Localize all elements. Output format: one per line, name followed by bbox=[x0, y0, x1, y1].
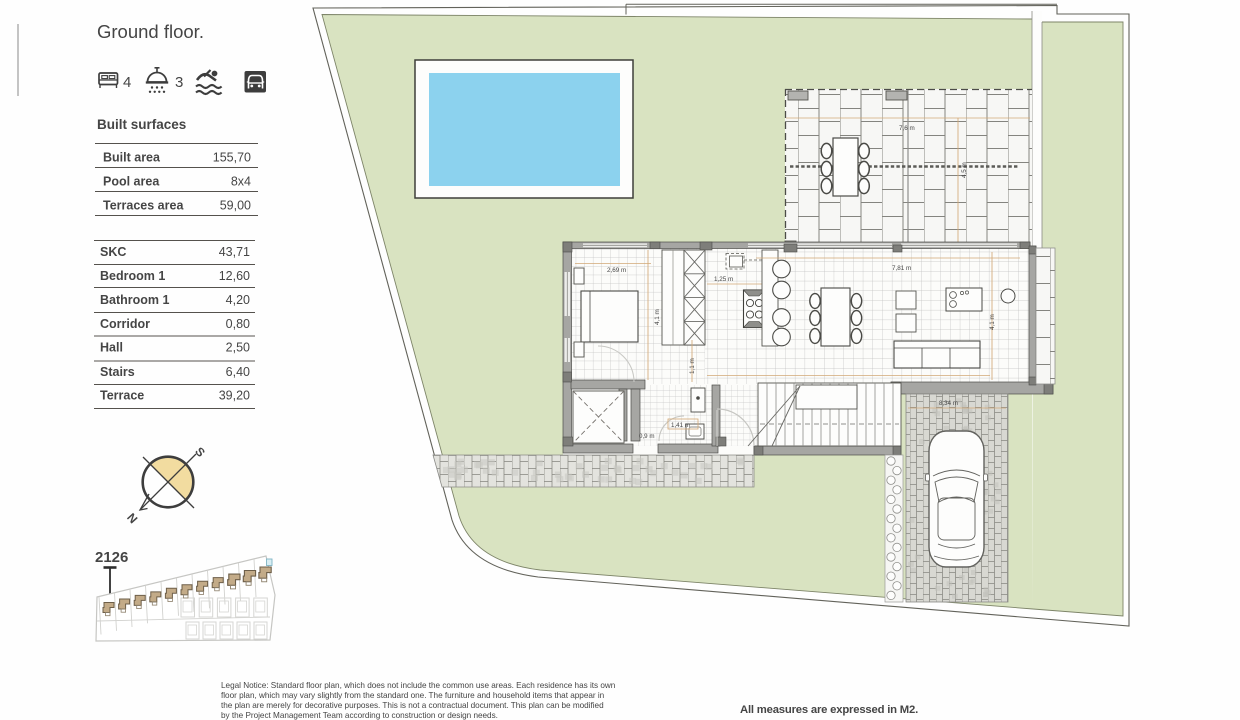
svg-text:Pool area: Pool area bbox=[103, 175, 160, 189]
svg-text:by the Project Management Team: by the Project Management Team according… bbox=[221, 711, 498, 720]
svg-text:4,1 m: 4,1 m bbox=[989, 314, 996, 330]
svg-text:Ground floor.: Ground floor. bbox=[97, 21, 204, 42]
svg-text:39,20: 39,20 bbox=[219, 389, 250, 403]
svg-text:Bathroom 1: Bathroom 1 bbox=[100, 293, 170, 307]
svg-text:Bedroom 1: Bedroom 1 bbox=[100, 269, 165, 283]
svg-text:1,1 m: 1,1 m bbox=[689, 358, 696, 374]
svg-text:Built surfaces: Built surfaces bbox=[97, 117, 186, 132]
svg-text:3: 3 bbox=[175, 74, 183, 91]
svg-text:6,40: 6,40 bbox=[226, 365, 250, 379]
svg-text:Stairs: Stairs bbox=[100, 365, 135, 379]
svg-text:4,1 m: 4,1 m bbox=[654, 309, 661, 325]
svg-text:155,70: 155,70 bbox=[213, 151, 251, 165]
svg-text:7,6 m: 7,6 m bbox=[899, 125, 915, 132]
svg-text:0,9 m: 0,9 m bbox=[639, 433, 654, 440]
svg-text:Terrace: Terrace bbox=[100, 389, 144, 403]
svg-text:Built area: Built area bbox=[103, 151, 161, 165]
svg-text:4: 4 bbox=[123, 74, 131, 91]
svg-text:2126: 2126 bbox=[95, 549, 128, 566]
svg-text:2,69 m: 2,69 m bbox=[607, 267, 626, 274]
svg-text:8,34 m: 8,34 m bbox=[939, 400, 958, 407]
svg-text:12,60: 12,60 bbox=[219, 269, 250, 283]
svg-text:1,25 m: 1,25 m bbox=[714, 276, 733, 283]
svg-text:2,50: 2,50 bbox=[226, 341, 250, 355]
svg-text:8x4: 8x4 bbox=[231, 175, 251, 189]
svg-text:43,71: 43,71 bbox=[219, 245, 250, 259]
svg-text:Corridor: Corridor bbox=[100, 317, 150, 331]
svg-text:Terraces area: Terraces area bbox=[103, 199, 184, 213]
svg-text:Hall: Hall bbox=[100, 341, 123, 355]
svg-text:floor plan, which may vary sli: floor plan, which may vary slightly from… bbox=[221, 691, 605, 700]
svg-text:4,20: 4,20 bbox=[226, 293, 250, 307]
svg-text:1,41 m: 1,41 m bbox=[671, 422, 690, 429]
svg-text:Legal Notice: Standard floor p: Legal Notice: Standard floor plan, which… bbox=[221, 681, 616, 690]
svg-text:4,5 m: 4,5 m bbox=[961, 162, 968, 178]
svg-text:SKC: SKC bbox=[100, 245, 126, 259]
svg-text:the plan are merely for decora: the plan are merely for decorative purpo… bbox=[221, 701, 604, 710]
svg-text:All measures are expressed in: All measures are expressed in M2. bbox=[740, 704, 918, 716]
svg-text:7,81 m: 7,81 m bbox=[892, 265, 911, 272]
svg-text:0,80: 0,80 bbox=[226, 317, 250, 331]
svg-text:59,00: 59,00 bbox=[220, 199, 251, 213]
